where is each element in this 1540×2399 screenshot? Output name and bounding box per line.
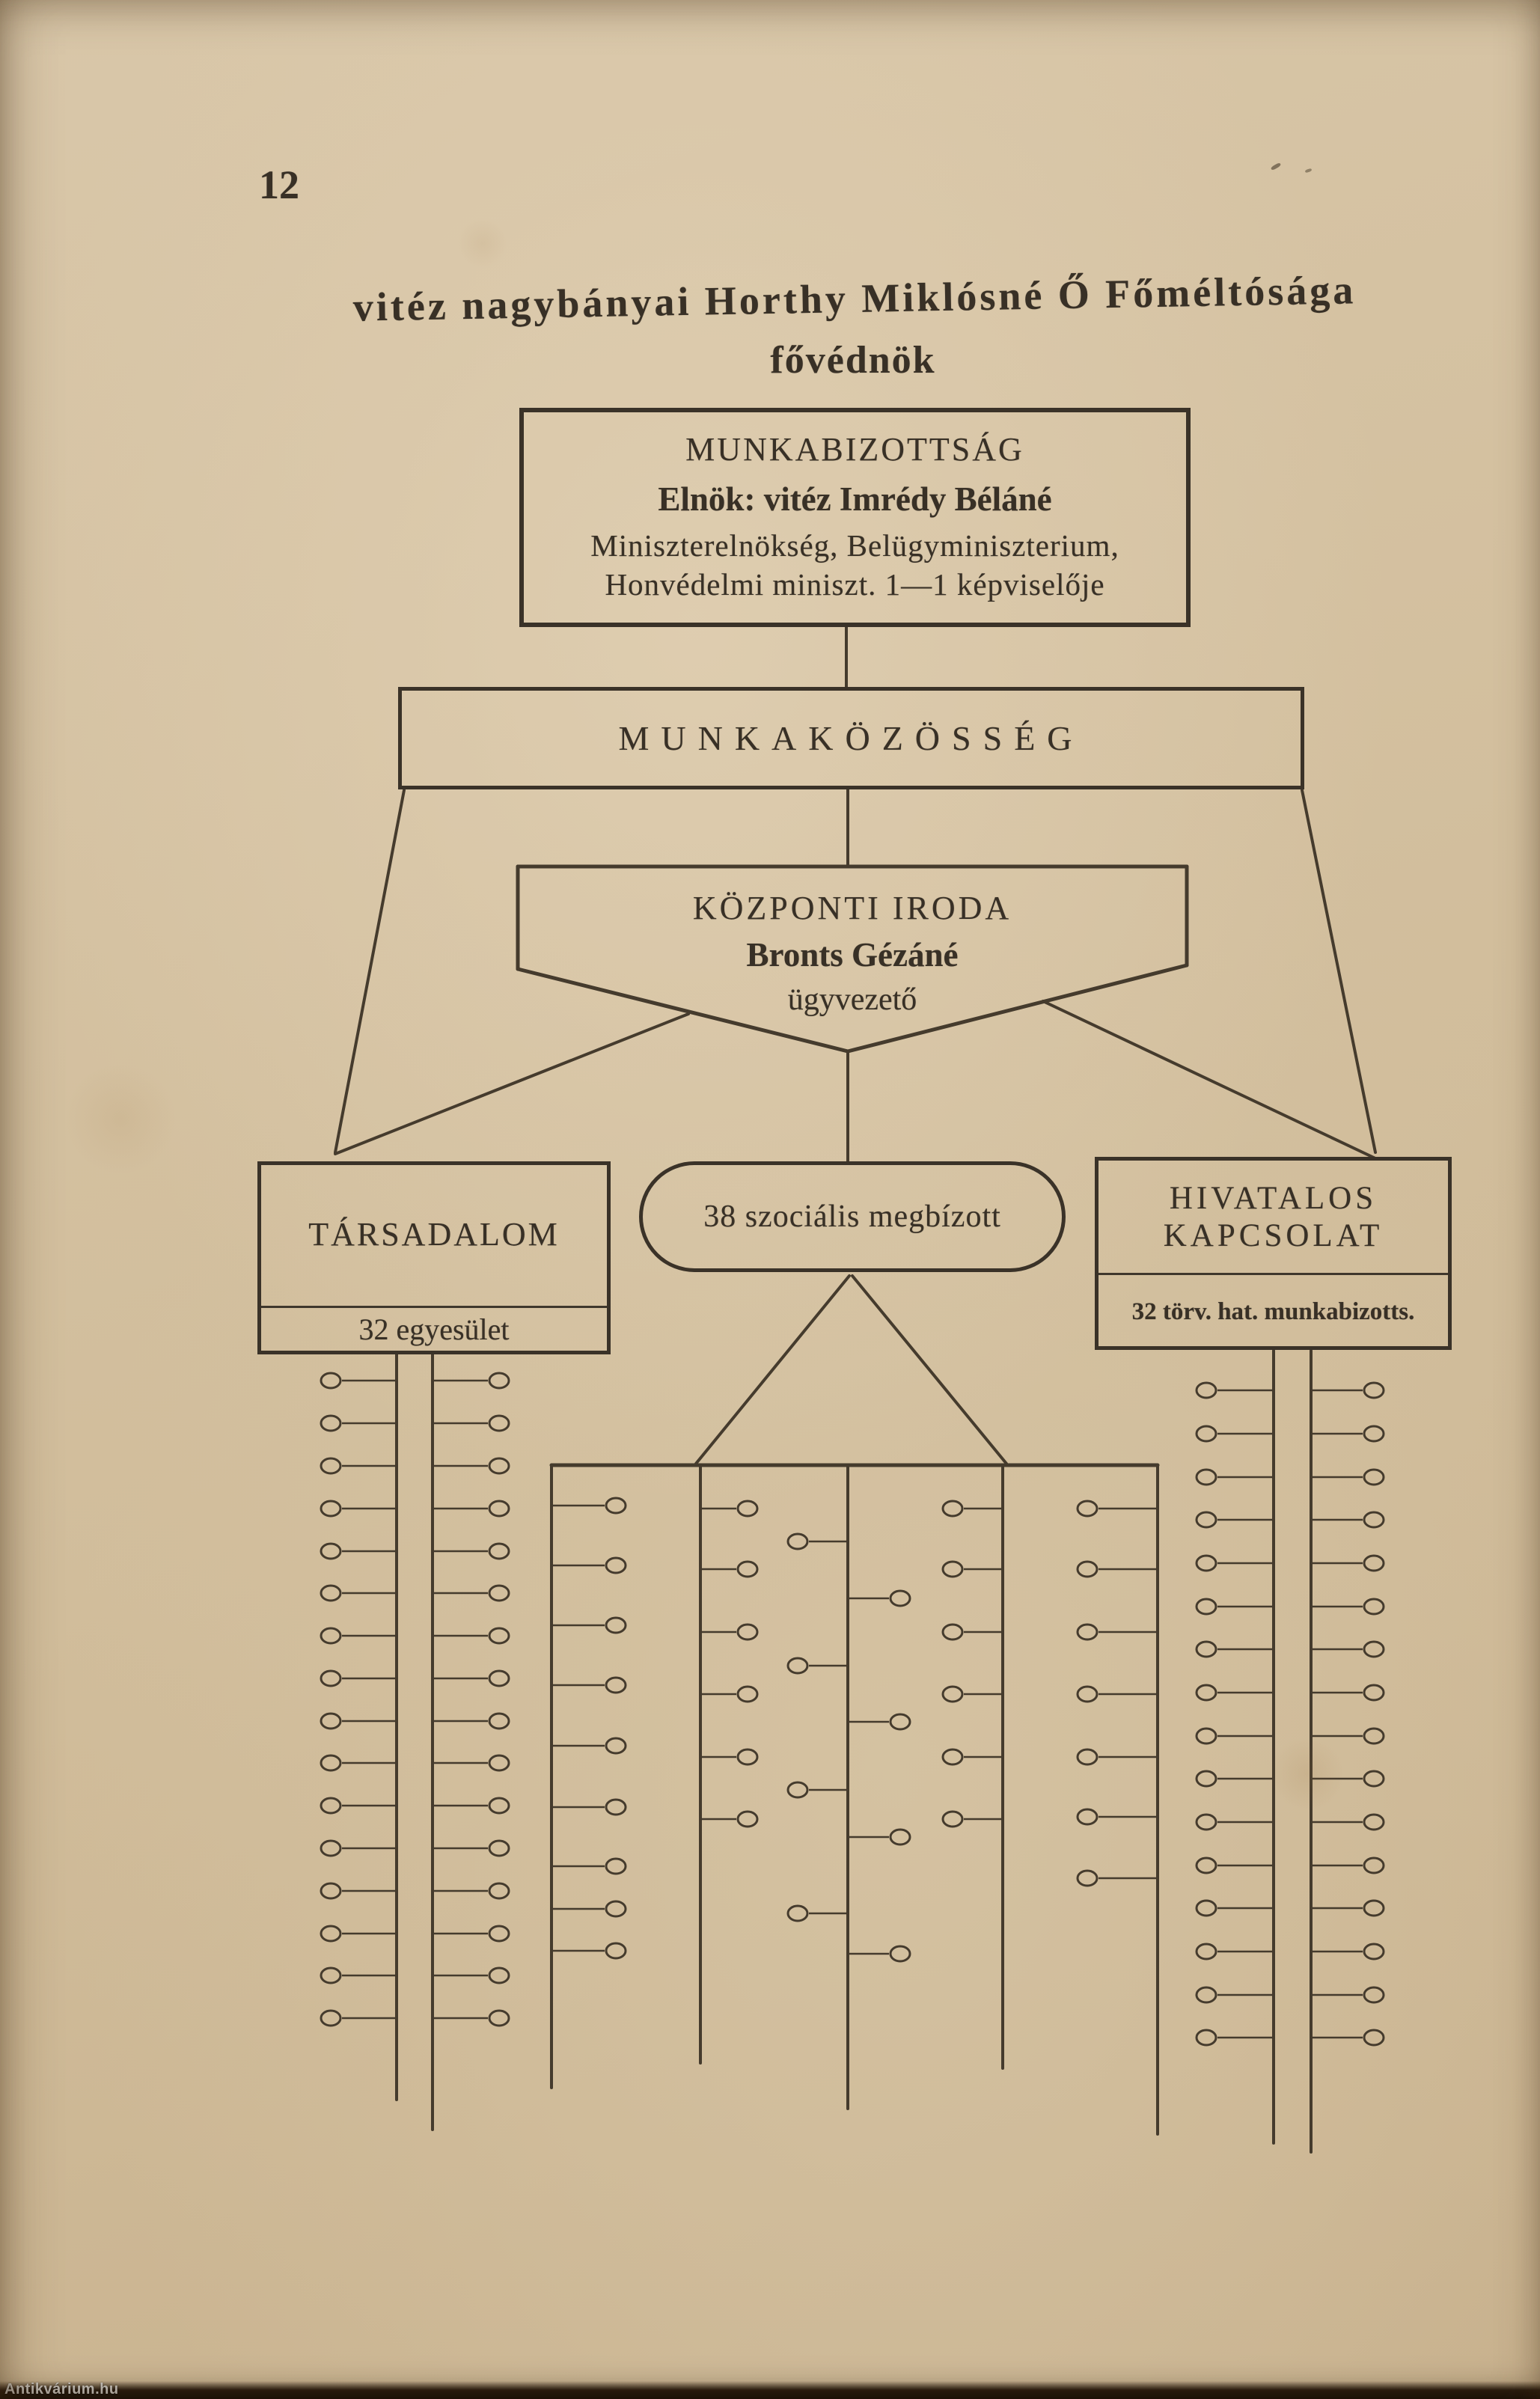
scan-edge-shadow	[0, 2381, 1540, 2399]
box-hivatalos: HIVATALOS KAPCSOLAT 32 törv. hat. munkab…	[1095, 1157, 1452, 1350]
box-tarsadalom-divider	[261, 1306, 607, 1308]
box-munkabizottsag-line4: Honvédelmi miniszt. 1—1 képviselője	[524, 566, 1186, 602]
box-kozponti-title: KÖZPONTI IRODA	[693, 889, 1012, 927]
box-munkabizottsag-line3: Miniszterelnökség, Belügyminiszterium,	[524, 528, 1186, 563]
box-hivatalos-title1: HIVATALOS	[1099, 1180, 1448, 1217]
page-subtitle: fővédnök	[770, 338, 935, 382]
box-munkabizottsag-title: MUNKABIZOTTSÁG	[524, 430, 1186, 468]
box-munkabizottsag: MUNKABIZOTTSÁG Elnök: vitéz Imrédy Bélán…	[519, 408, 1191, 627]
box-tarsadalom-title: TÁRSADALOM	[261, 1215, 607, 1253]
oval-szocialis-megbizott: 38 szociális megbízott	[639, 1161, 1066, 1272]
box-kozponti-name: Bronts Gézáné	[747, 935, 959, 974]
box-hivatalos-subtitle: 32 törv. hat. munkabizotts.	[1099, 1298, 1448, 1326]
box-munkakozosseg-title: MUNKAKÖZÖSSÉG	[402, 691, 1301, 786]
box-munkabizottsag-chair: Elnök: vitéz Imrédy Béláné	[524, 480, 1186, 519]
box-hivatalos-title2: KAPCSOLAT	[1099, 1217, 1448, 1254]
box-tarsadalom: TÁRSADALOM 32 egyesület	[257, 1161, 611, 1354]
box-kozponti-role: ügyvezető	[788, 982, 917, 1018]
box-hivatalos-divider	[1099, 1273, 1448, 1275]
scanned-book-page: 12 vitéz nagybányai Horthy Miklósné Ő Fő…	[0, 0, 1540, 2399]
watermark: Antikvárium.hu	[4, 2381, 119, 2398]
oval-szocialis-label: 38 szociális megbízott	[643, 1165, 1062, 1268]
box-munkakozosseg: MUNKAKÖZÖSSÉG	[398, 687, 1304, 789]
box-tarsadalom-subtitle: 32 egyesület	[261, 1312, 607, 1347]
page-number: 12	[259, 162, 299, 208]
